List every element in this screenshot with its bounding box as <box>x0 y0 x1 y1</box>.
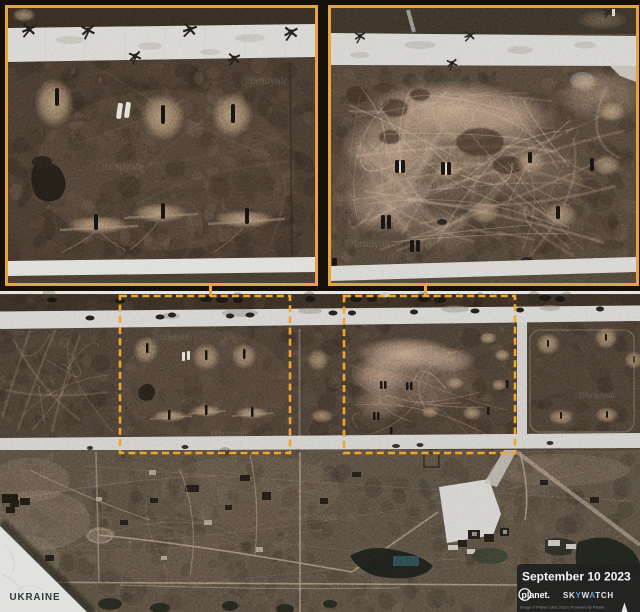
svg-text:planet.: planet. <box>522 590 550 600</box>
svg-text:@bradyafr: @bradyafr <box>300 513 338 522</box>
svg-text:@bradyafr: @bradyafr <box>344 239 392 250</box>
svg-text:@bradyafr: @bradyafr <box>578 391 616 400</box>
svg-text:Image © Planet Labs 2023 | Pow: Image © Planet Labs 2023 | Powered by Pl… <box>520 605 605 610</box>
svg-text:@bradyafr: @bradyafr <box>398 399 436 408</box>
svg-text:@bradyafr: @bradyafr <box>240 76 288 87</box>
svg-text:@bradyafr: @bradyafr <box>210 429 248 438</box>
svg-text:@bradyafr: @bradyafr <box>408 182 456 193</box>
svg-text:SKYWATCH: SKYWATCH <box>563 591 614 600</box>
svg-text:@bradyafr: @bradyafr <box>45 388 83 397</box>
svg-text:@bradyafr: @bradyafr <box>152 333 190 342</box>
svg-text:September 10 2023: September 10 2023 <box>522 570 631 584</box>
svg-text:@bradyafr: @bradyafr <box>95 162 143 173</box>
svg-text:UKRAINE: UKRAINE <box>10 592 61 603</box>
